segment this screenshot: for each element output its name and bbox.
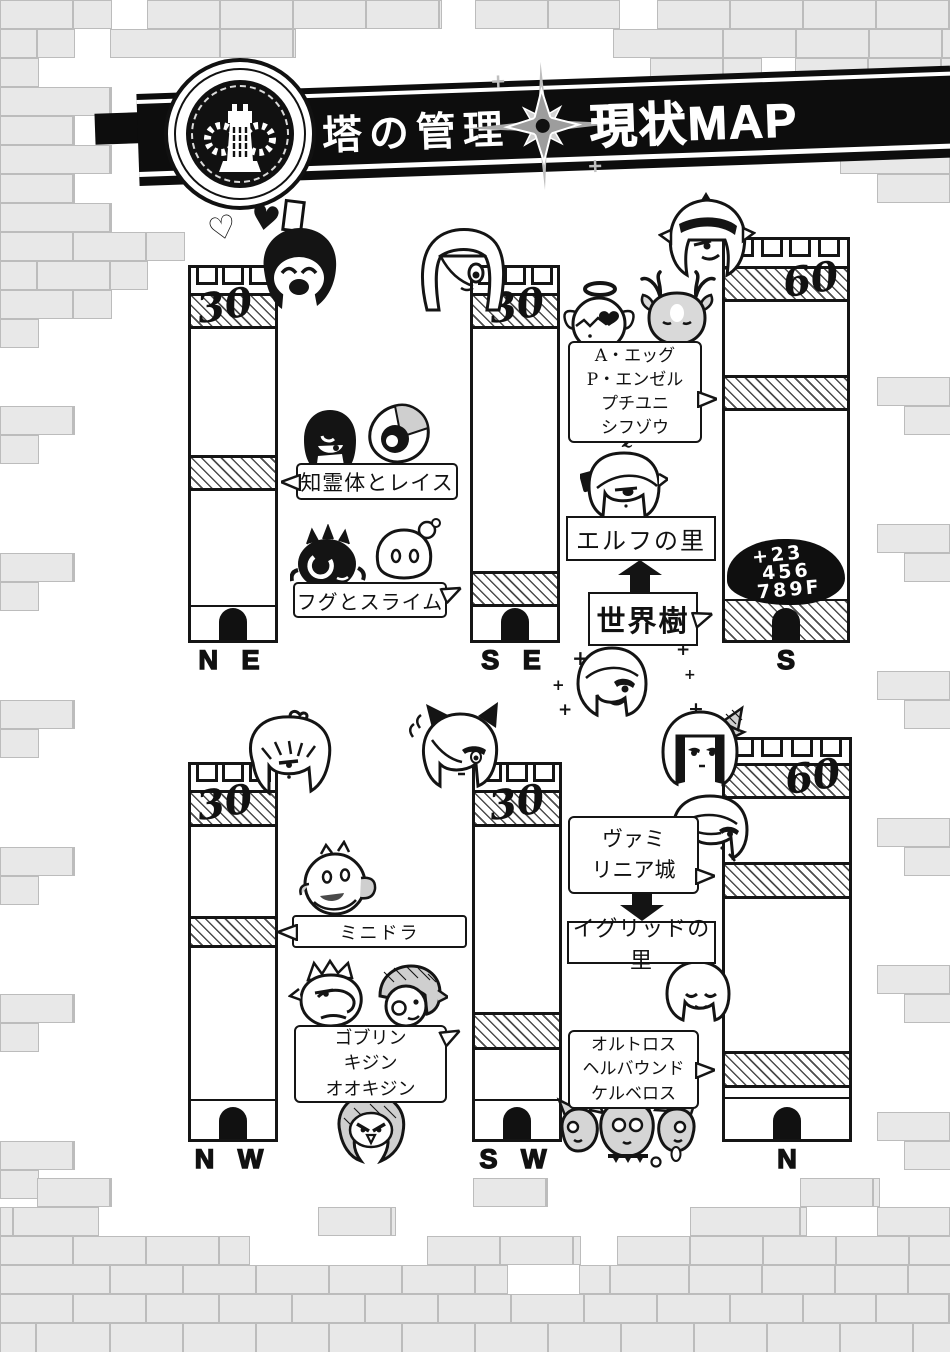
brick-run: [877, 174, 950, 203]
callout-tail: [278, 924, 298, 941]
brick-run: [0, 994, 75, 1023]
tower-ne-label: N E: [198, 645, 267, 676]
tower-n-band2: [725, 1051, 849, 1088]
brick-run: [0, 261, 148, 290]
monster-name: A・エッグ: [595, 344, 675, 368]
brick-run: [0, 700, 75, 729]
sparkle-icon: +: [684, 668, 696, 682]
brick-run: [0, 203, 112, 232]
floor-note-line: 789F: [756, 578, 822, 602]
label-igrid-village-text: イグリッドの里: [569, 911, 714, 975]
brick-run: [0, 876, 39, 905]
tower-n-level: 60: [783, 753, 844, 801]
monster-name: ヘルバウンド: [583, 1057, 685, 1082]
brick-run: [0, 847, 75, 876]
brick-run: [0, 1294, 950, 1323]
brick-run: [318, 1207, 396, 1236]
brick-run: [0, 553, 75, 582]
brick-run: [0, 87, 112, 116]
callout-world-tree: 世界樹: [588, 592, 698, 646]
tower-nw: 30: [188, 762, 278, 1142]
monster-name: オルトロス: [591, 1033, 676, 1058]
tower-sw-door: [503, 1107, 531, 1139]
tower-n-door: [773, 1107, 801, 1139]
tower-s-label: S: [777, 645, 795, 676]
sparkle-icon: +: [558, 702, 572, 719]
brick-run: [0, 290, 112, 319]
brick-run: [877, 671, 950, 700]
sparkle-icon: +: [572, 648, 589, 668]
callout-minidora: ミニドラ: [292, 915, 467, 948]
callout-fugu-slime: フグとスライム: [293, 582, 447, 618]
tower-gear-icon: [204, 91, 276, 177]
tower-ne-door: [219, 608, 247, 640]
page-title-right: 現状MAP: [588, 81, 799, 157]
callout-fugu-slime-text: フグとスライム: [297, 586, 444, 615]
character-catear-girl: [404, 700, 510, 800]
brick-run: [657, 0, 950, 29]
tower-emblem: [164, 58, 316, 210]
brick-run: [904, 847, 950, 876]
callout-tail: [438, 1023, 463, 1047]
brick-run: [0, 116, 75, 145]
tower-se-base: [473, 605, 557, 640]
callout-tail: [695, 1062, 715, 1079]
label-elf-village-text: エルフの里: [576, 521, 706, 556]
callout-vamilinia-line: ヴァミ: [602, 824, 665, 856]
tower-s-band: [725, 375, 847, 411]
callout-tail: [697, 391, 717, 408]
brick-run: [0, 29, 75, 58]
brick-run: [0, 406, 75, 435]
brick-run: [147, 0, 442, 29]
brick-run: [904, 994, 950, 1023]
monster-name: シフゾウ: [601, 416, 669, 440]
callout-vamilinia: ヴァミ リニア城: [568, 816, 699, 894]
brick-run: [0, 1023, 39, 1052]
brick-run: [0, 729, 39, 758]
tower-sw-base: [475, 1099, 559, 1139]
label-igrid-village: イグリッドの里: [567, 921, 716, 964]
brick-run: [0, 58, 39, 87]
tower-nw-door: [219, 1107, 247, 1139]
monster-deer-head: [634, 268, 720, 350]
callout-vamilinia-line: リニア城: [592, 855, 676, 887]
banner-left-stub: [94, 112, 138, 144]
tower-n-base: [725, 1097, 849, 1139]
callout-tail: [281, 474, 301, 491]
brick-run: [0, 1265, 508, 1294]
heart-outline-icon: ♡: [205, 209, 241, 247]
brick-run: [613, 29, 950, 58]
tower-sw: 30: [472, 762, 562, 1142]
tower-ne-base: [191, 605, 275, 640]
callout-tail: [691, 606, 715, 628]
callout-world-tree-text: 世界樹: [596, 598, 689, 640]
callout-tail: [695, 868, 715, 885]
brick-run: [110, 29, 296, 58]
brick-run: [877, 377, 950, 406]
brick-run: [877, 524, 950, 553]
brick-run: [904, 700, 950, 729]
monster-wraith-orb: [364, 402, 434, 468]
label-elf-village: エルフの里: [566, 516, 716, 561]
tower-nw-label: N W: [195, 1144, 271, 1175]
floor-note-blob: +23 456 789F: [727, 539, 845, 605]
brick-run: [0, 319, 39, 348]
brick-run: [800, 1178, 880, 1207]
tower-ne: 30: [188, 265, 278, 643]
brick-run: [0, 1236, 250, 1265]
tower-n-label: N: [777, 1144, 797, 1175]
brick-run: [0, 232, 185, 261]
character-ahoge-boy: [238, 708, 338, 802]
monster-hooded-goblin: [370, 960, 448, 1032]
monster-slime: [368, 518, 442, 582]
brick-run: [0, 1170, 39, 1199]
brick-run: [0, 174, 75, 203]
tower-se-door: [501, 608, 529, 640]
brick-run: [877, 965, 950, 994]
tower-sw-label: S W: [480, 1144, 555, 1175]
callout-minidora-text: ミニドラ: [340, 919, 420, 945]
tower-se-band: [473, 571, 557, 607]
brick-run: [473, 1178, 548, 1207]
callout-s-monsters: A・エッグ P・エンゼル プチユニ シフゾウ: [568, 341, 702, 443]
tower-se: 30: [470, 265, 560, 643]
tower-sw-band: [475, 1012, 559, 1050]
manga-map-page: 塔の管理 現状MAP 30: [0, 0, 950, 1352]
brick-run: [877, 818, 950, 847]
character-ribbon-girl: [650, 700, 750, 796]
callout-chireitai: 知霊体とレイス: [296, 463, 458, 500]
callout-chireitai-text: 知霊体とレイス: [300, 467, 453, 497]
brick-run: [690, 1207, 807, 1236]
brick-run: [904, 1141, 950, 1170]
brick-run: [37, 1178, 112, 1207]
brick-run: [617, 1236, 950, 1265]
callout-goblins: ゴブリン キジン オオキジン: [294, 1025, 447, 1103]
tower-s-base: [725, 599, 847, 640]
brick-run: [904, 406, 950, 435]
brick-run: [0, 1141, 75, 1170]
monster-name: P・エンゼル: [587, 368, 683, 392]
brick-run: [904, 553, 950, 582]
brick-run: [877, 1207, 950, 1236]
character-laughing-head: [250, 222, 348, 312]
brick-run: [0, 435, 39, 464]
character-headband-girl: [416, 220, 510, 314]
brick-run: [427, 1236, 581, 1265]
callout-hellhounds: オルトロス ヘルバウンド ケルベロス: [568, 1030, 699, 1109]
tower-se-label: S E: [481, 645, 549, 676]
brick-run: [475, 0, 620, 29]
monster-name: ケルベロス: [591, 1082, 676, 1107]
brick-run: [0, 1207, 99, 1236]
tower-nw-base: [191, 1099, 275, 1139]
brick-run: [0, 582, 39, 611]
monster-minidora: [292, 840, 378, 926]
monster-goblin: [288, 958, 376, 1034]
character-elf-villager: [580, 444, 668, 524]
tower-ne-level: 30: [194, 282, 255, 330]
sparkle-icon: +: [552, 678, 565, 693]
brick-run: [0, 145, 112, 174]
monster-name: オオキジン: [326, 1077, 416, 1103]
tower-s-level: 60: [781, 256, 842, 304]
monster-name: プチユニ: [601, 392, 669, 416]
tower-nw-band: [191, 916, 275, 948]
monster-name: ゴブリン: [335, 1026, 407, 1052]
brick-run: [0, 0, 112, 29]
tower-s-door: [772, 608, 800, 640]
arrow-up-icon: [618, 560, 662, 592]
tower-ne-band: [191, 455, 275, 491]
brick-run: [877, 1112, 950, 1141]
emblem-disc: [186, 80, 294, 188]
brick-run: [579, 1265, 950, 1294]
brick-run: [0, 1323, 950, 1352]
monster-name: キジン: [344, 1051, 398, 1077]
